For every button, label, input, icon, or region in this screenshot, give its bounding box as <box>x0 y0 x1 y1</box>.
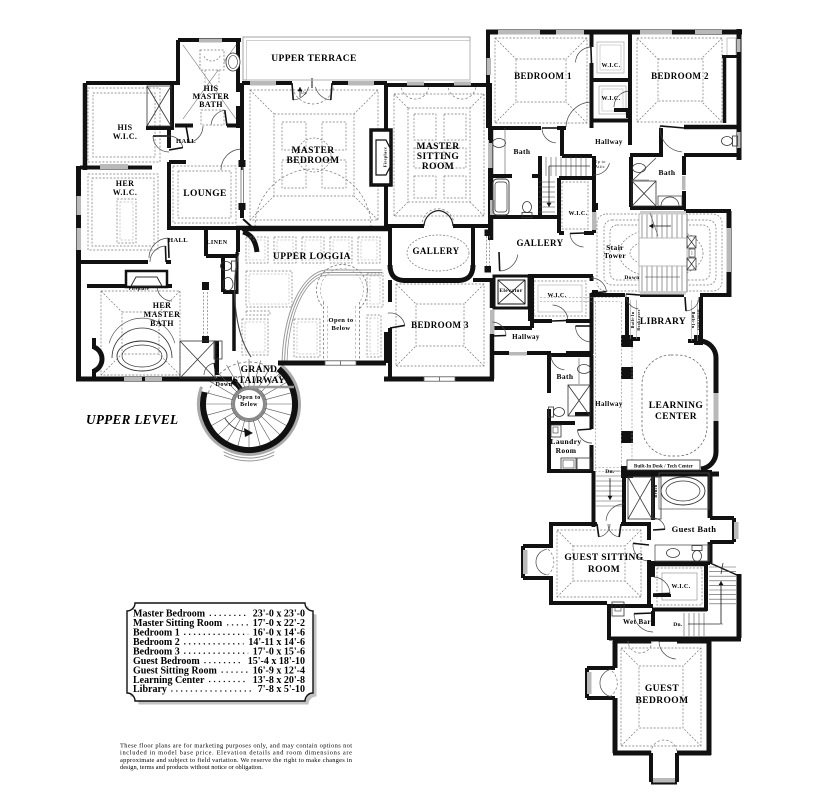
svg-text:Laundry: Laundry <box>550 437 581 446</box>
svg-text:Open to: Open to <box>328 317 353 324</box>
svg-text:CENTER: CENTER <box>655 412 697 422</box>
svg-text:W.I.C.: W.I.C. <box>113 132 138 141</box>
svg-text:W.I.C.: W.I.C. <box>601 63 620 69</box>
svg-text:Below: Below <box>240 402 258 408</box>
svg-text:Hallway: Hallway <box>595 400 623 408</box>
svg-text:Attic: Attic <box>595 164 605 169</box>
svg-text:Guest Bath: Guest Bath <box>672 524 717 534</box>
svg-text:Built-In: Built-In <box>691 312 696 329</box>
svg-text:Bench: Bench <box>653 484 658 497</box>
svg-text:Elevator: Elevator <box>499 288 523 294</box>
svg-text:LOUNGE: LOUNGE <box>183 189 227 199</box>
svg-text:W.I.C.: W.I.C. <box>601 96 620 102</box>
svg-text:Bath: Bath <box>658 168 675 177</box>
svg-text:MASTER: MASTER <box>144 310 181 319</box>
svg-text:Down: Down <box>624 275 639 281</box>
svg-text:included in model base price.: included in model base price. Elevation … <box>120 750 352 757</box>
svg-text:HALL: HALL <box>168 237 188 244</box>
svg-text:GUEST: GUEST <box>645 684 679 694</box>
svg-text:W.I.C.: W.I.C. <box>547 293 566 299</box>
svg-text:Built-In Desk / Tech Center: Built-In Desk / Tech Center <box>634 464 694 469</box>
svg-text:Wet Bar: Wet Bar <box>623 618 651 626</box>
svg-text:ROOM: ROOM <box>588 565 620 575</box>
svg-text:UPPER LEVEL: UPPER LEVEL <box>86 412 178 427</box>
svg-text:Down: Down <box>215 381 232 388</box>
svg-text:Fireplace: Fireplace <box>129 286 149 291</box>
svg-text:Up: Up <box>301 90 307 95</box>
svg-text:LEARNING: LEARNING <box>649 401 704 411</box>
svg-text:MASTER: MASTER <box>416 142 459 152</box>
svg-text:GALLERY: GALLERY <box>413 246 460 256</box>
svg-text:BEDROOM: BEDROOM <box>636 696 689 706</box>
svg-text:7'-8 x 5'-10: 7'-8 x 5'-10 <box>258 684 305 695</box>
svg-text:UPPER TERRACE: UPPER TERRACE <box>271 54 357 64</box>
svg-text:UPPER LOGGIA: UPPER LOGGIA <box>273 252 351 262</box>
svg-text:GALLERY: GALLERY <box>517 238 564 248</box>
svg-text:approximate and subject to fie: approximate and subject to field variati… <box>120 757 353 764</box>
svg-text:BATH: BATH <box>199 100 223 109</box>
svg-text:Built-In: Built-In <box>630 311 635 328</box>
svg-text:Room: Room <box>556 446 577 455</box>
svg-text:GUEST SITTING: GUEST SITTING <box>564 553 643 563</box>
svg-text:STAIRWAY: STAIRWAY <box>233 376 286 386</box>
svg-text:Library: Library <box>133 684 167 695</box>
svg-text:design, terms and products wit: design, terms and products without notic… <box>120 764 263 771</box>
svg-text:W.I.C.: W.I.C. <box>113 188 138 197</box>
svg-text:Tower: Tower <box>604 251 626 260</box>
svg-text:Bath: Bath <box>513 147 530 156</box>
svg-text:Dn.: Dn. <box>673 622 683 628</box>
svg-text:Bath: Bath <box>556 372 573 381</box>
svg-text:W.I.C.: W.I.C. <box>671 584 690 590</box>
svg-text:Bookcases: Bookcases <box>697 309 702 330</box>
svg-text:ROOM: ROOM <box>422 162 454 172</box>
svg-text:W.I.C.: W.I.C. <box>568 211 587 217</box>
svg-text:Bookcases: Bookcases <box>636 309 641 330</box>
svg-text:Open to: Open to <box>237 395 260 401</box>
svg-text:BEDROOM 2: BEDROOM 2 <box>651 71 709 81</box>
svg-text:Bench: Bench <box>215 343 220 356</box>
svg-text:HER: HER <box>153 301 172 310</box>
svg-text:Below: Below <box>332 325 351 332</box>
svg-text:BATH: BATH <box>150 319 174 328</box>
svg-text:Fireplace: Fireplace <box>383 147 388 167</box>
svg-text:LINEN: LINEN <box>206 240 227 246</box>
svg-text:HIS: HIS <box>118 123 133 132</box>
svg-text:These floor plans are for mark: These floor plans are for marketing purp… <box>120 742 352 749</box>
svg-text:LIBRARY: LIBRARY <box>640 317 686 327</box>
svg-text:BEDROOM 1: BEDROOM 1 <box>514 71 572 81</box>
svg-text:Dn.: Dn. <box>605 469 615 475</box>
svg-text:MASTER: MASTER <box>291 146 334 156</box>
svg-text:HALL: HALL <box>176 138 196 145</box>
svg-text:BEDROOM 3: BEDROOM 3 <box>411 320 469 330</box>
svg-text:HER: HER <box>116 179 135 188</box>
svg-text:GRAND: GRAND <box>241 365 278 375</box>
svg-text:SITTING: SITTING <box>417 152 460 162</box>
svg-text:Hallway: Hallway <box>512 333 540 341</box>
svg-text:Hallway: Hallway <box>595 138 623 146</box>
svg-text:BEDROOM: BEDROOM <box>287 156 340 166</box>
